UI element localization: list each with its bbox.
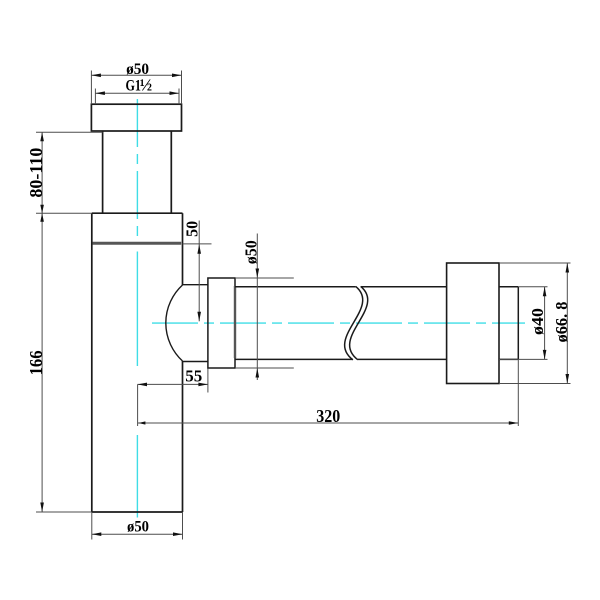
svg-text:320: 320 <box>316 406 340 426</box>
svg-text:½: ½ <box>140 75 152 94</box>
svg-text:G1: G1 <box>126 77 142 94</box>
svg-text:ø50: ø50 <box>241 240 260 264</box>
svg-text:ø50: ø50 <box>127 519 149 536</box>
svg-text:ø66. 8: ø66. 8 <box>552 302 571 343</box>
svg-text:50: 50 <box>183 221 202 237</box>
svg-text:ø40: ø40 <box>528 308 547 335</box>
svg-text:55: 55 <box>185 367 202 386</box>
svg-text:166: 166 <box>26 350 46 375</box>
svg-text:80-110: 80-110 <box>26 148 46 198</box>
